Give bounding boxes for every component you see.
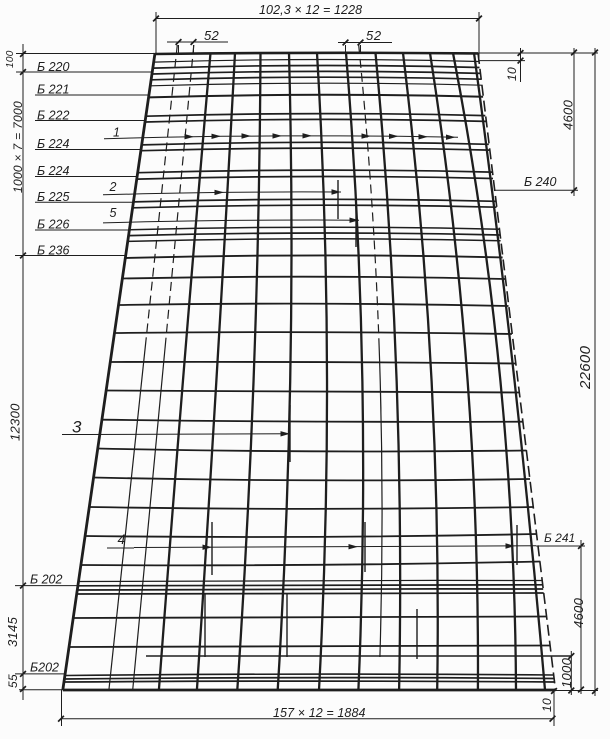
svg-text:Б 224: Б 224 <box>37 137 70 151</box>
svg-text:1000 × 7 = 7000: 1000 × 7 = 7000 <box>11 101 25 193</box>
svg-text:2: 2 <box>109 180 117 194</box>
svg-text:100: 100 <box>5 50 16 68</box>
svg-text:1: 1 <box>113 126 120 140</box>
svg-text:102,3 × 12 = 1228: 102,3 × 12 = 1228 <box>259 3 362 17</box>
svg-text:4600: 4600 <box>561 99 576 130</box>
svg-text:52: 52 <box>204 28 220 43</box>
svg-text:22600: 22600 <box>577 345 594 390</box>
svg-text:10: 10 <box>505 67 519 81</box>
svg-text:4600: 4600 <box>571 597 586 628</box>
svg-text:5: 5 <box>110 206 117 220</box>
svg-text:4: 4 <box>118 531 126 547</box>
svg-text:52: 52 <box>366 28 382 43</box>
svg-text:Б 241: Б 241 <box>544 531 575 545</box>
svg-text:Б 226: Б 226 <box>37 218 70 232</box>
svg-text:Б 221: Б 221 <box>37 83 69 97</box>
svg-text:157 × 12 = 1884: 157 × 12 = 1884 <box>273 706 366 720</box>
svg-text:3145: 3145 <box>5 616 20 647</box>
svg-text:Б 202: Б 202 <box>30 573 63 587</box>
svg-text:10: 10 <box>540 698 554 712</box>
svg-text:1000: 1000 <box>559 657 574 688</box>
svg-text:3: 3 <box>72 418 82 437</box>
svg-text:Б 224: Б 224 <box>37 164 70 178</box>
svg-text:Б202: Б202 <box>30 661 59 675</box>
svg-text:55: 55 <box>6 674 20 688</box>
svg-text:Б 240: Б 240 <box>524 175 557 189</box>
svg-text:12300: 12300 <box>8 403 23 441</box>
